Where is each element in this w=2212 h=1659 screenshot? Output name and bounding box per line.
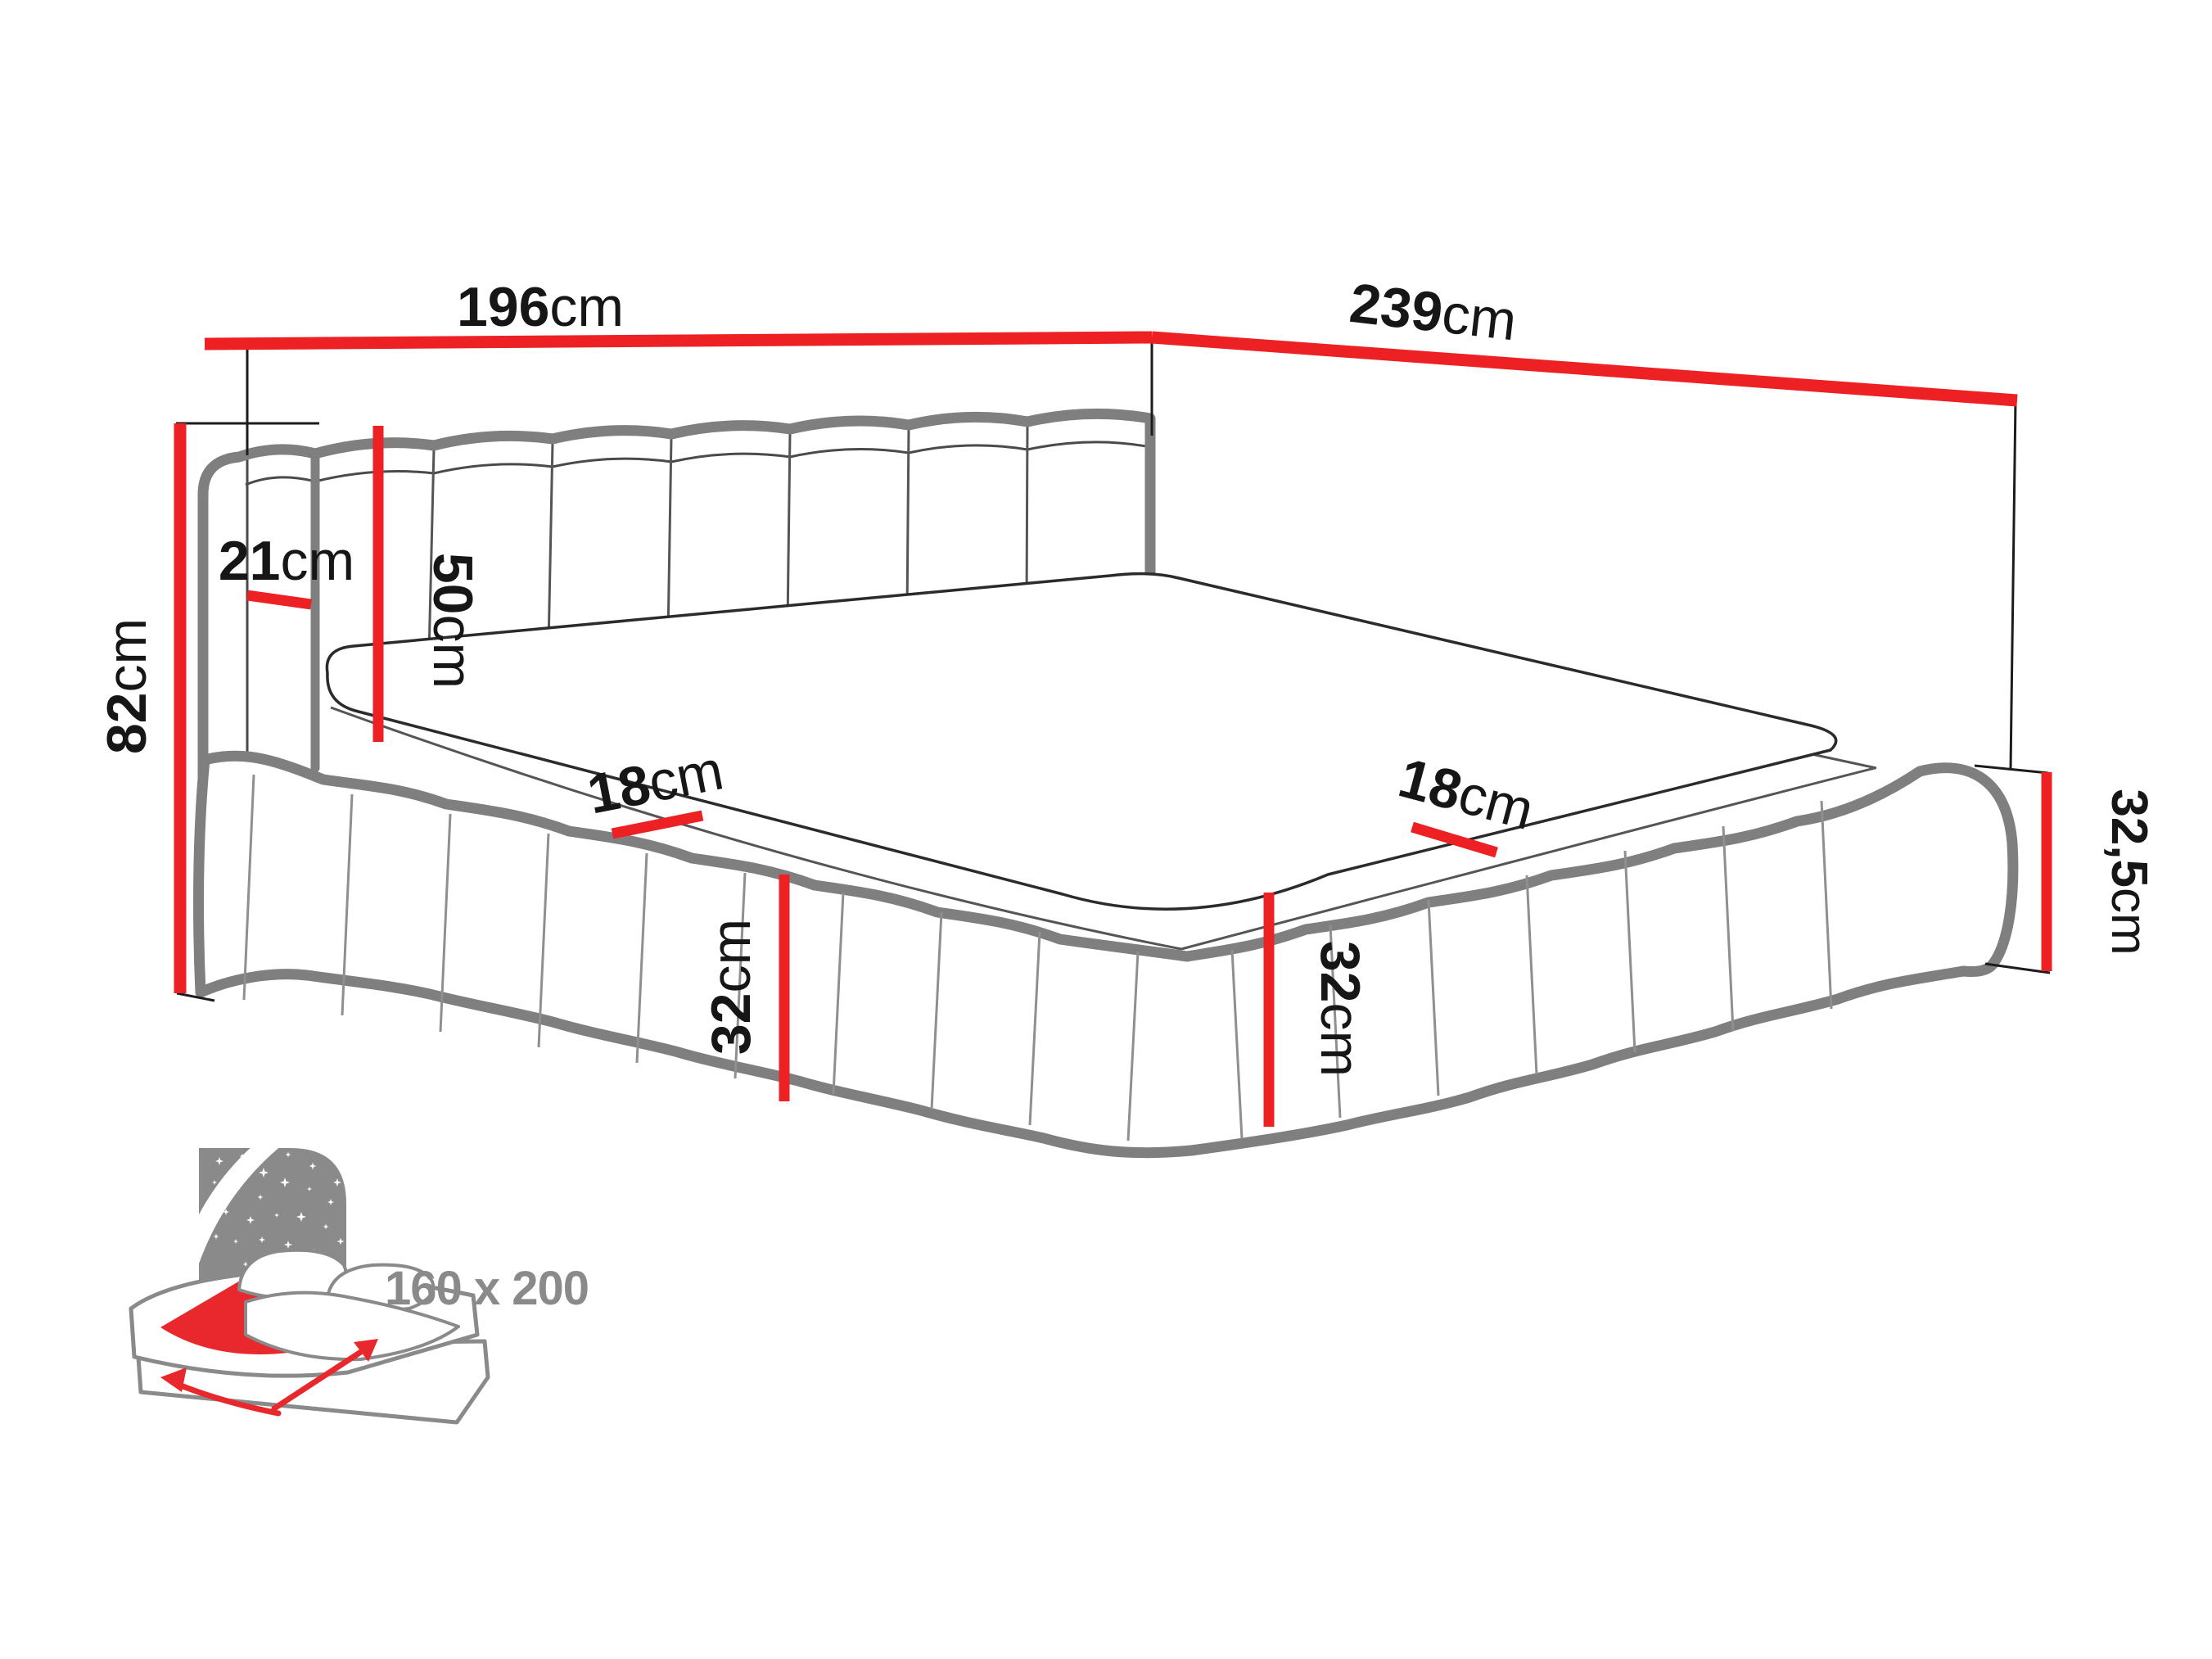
bed-dimension-diagram: 160 x 200 196cm 239cm 82cm 21 [0, 0, 2212, 1659]
label-height-82: 82cm [96, 618, 158, 754]
dim-line-depth-239 [1152, 337, 2017, 400]
label-base-32-right: 32cm [1309, 941, 1371, 1077]
mattress-size-icon: 160 x 200 [131, 1145, 589, 1422]
mattress-size-label: 160 x 200 [385, 1262, 589, 1315]
tick-239-right [2011, 400, 2016, 768]
label-headboard-50: 50cm [422, 553, 484, 689]
label-width-196: 196cm [457, 276, 624, 338]
label-base-325: 32,5cm [2101, 789, 2157, 955]
label-side-21: 21cm [219, 530, 354, 592]
dim-line-width-196 [205, 337, 1152, 344]
label-depth-239: 239cm [1347, 272, 1519, 353]
bed-drawing [199, 414, 2013, 1152]
label-base-32-left: 32cm [700, 919, 762, 1055]
